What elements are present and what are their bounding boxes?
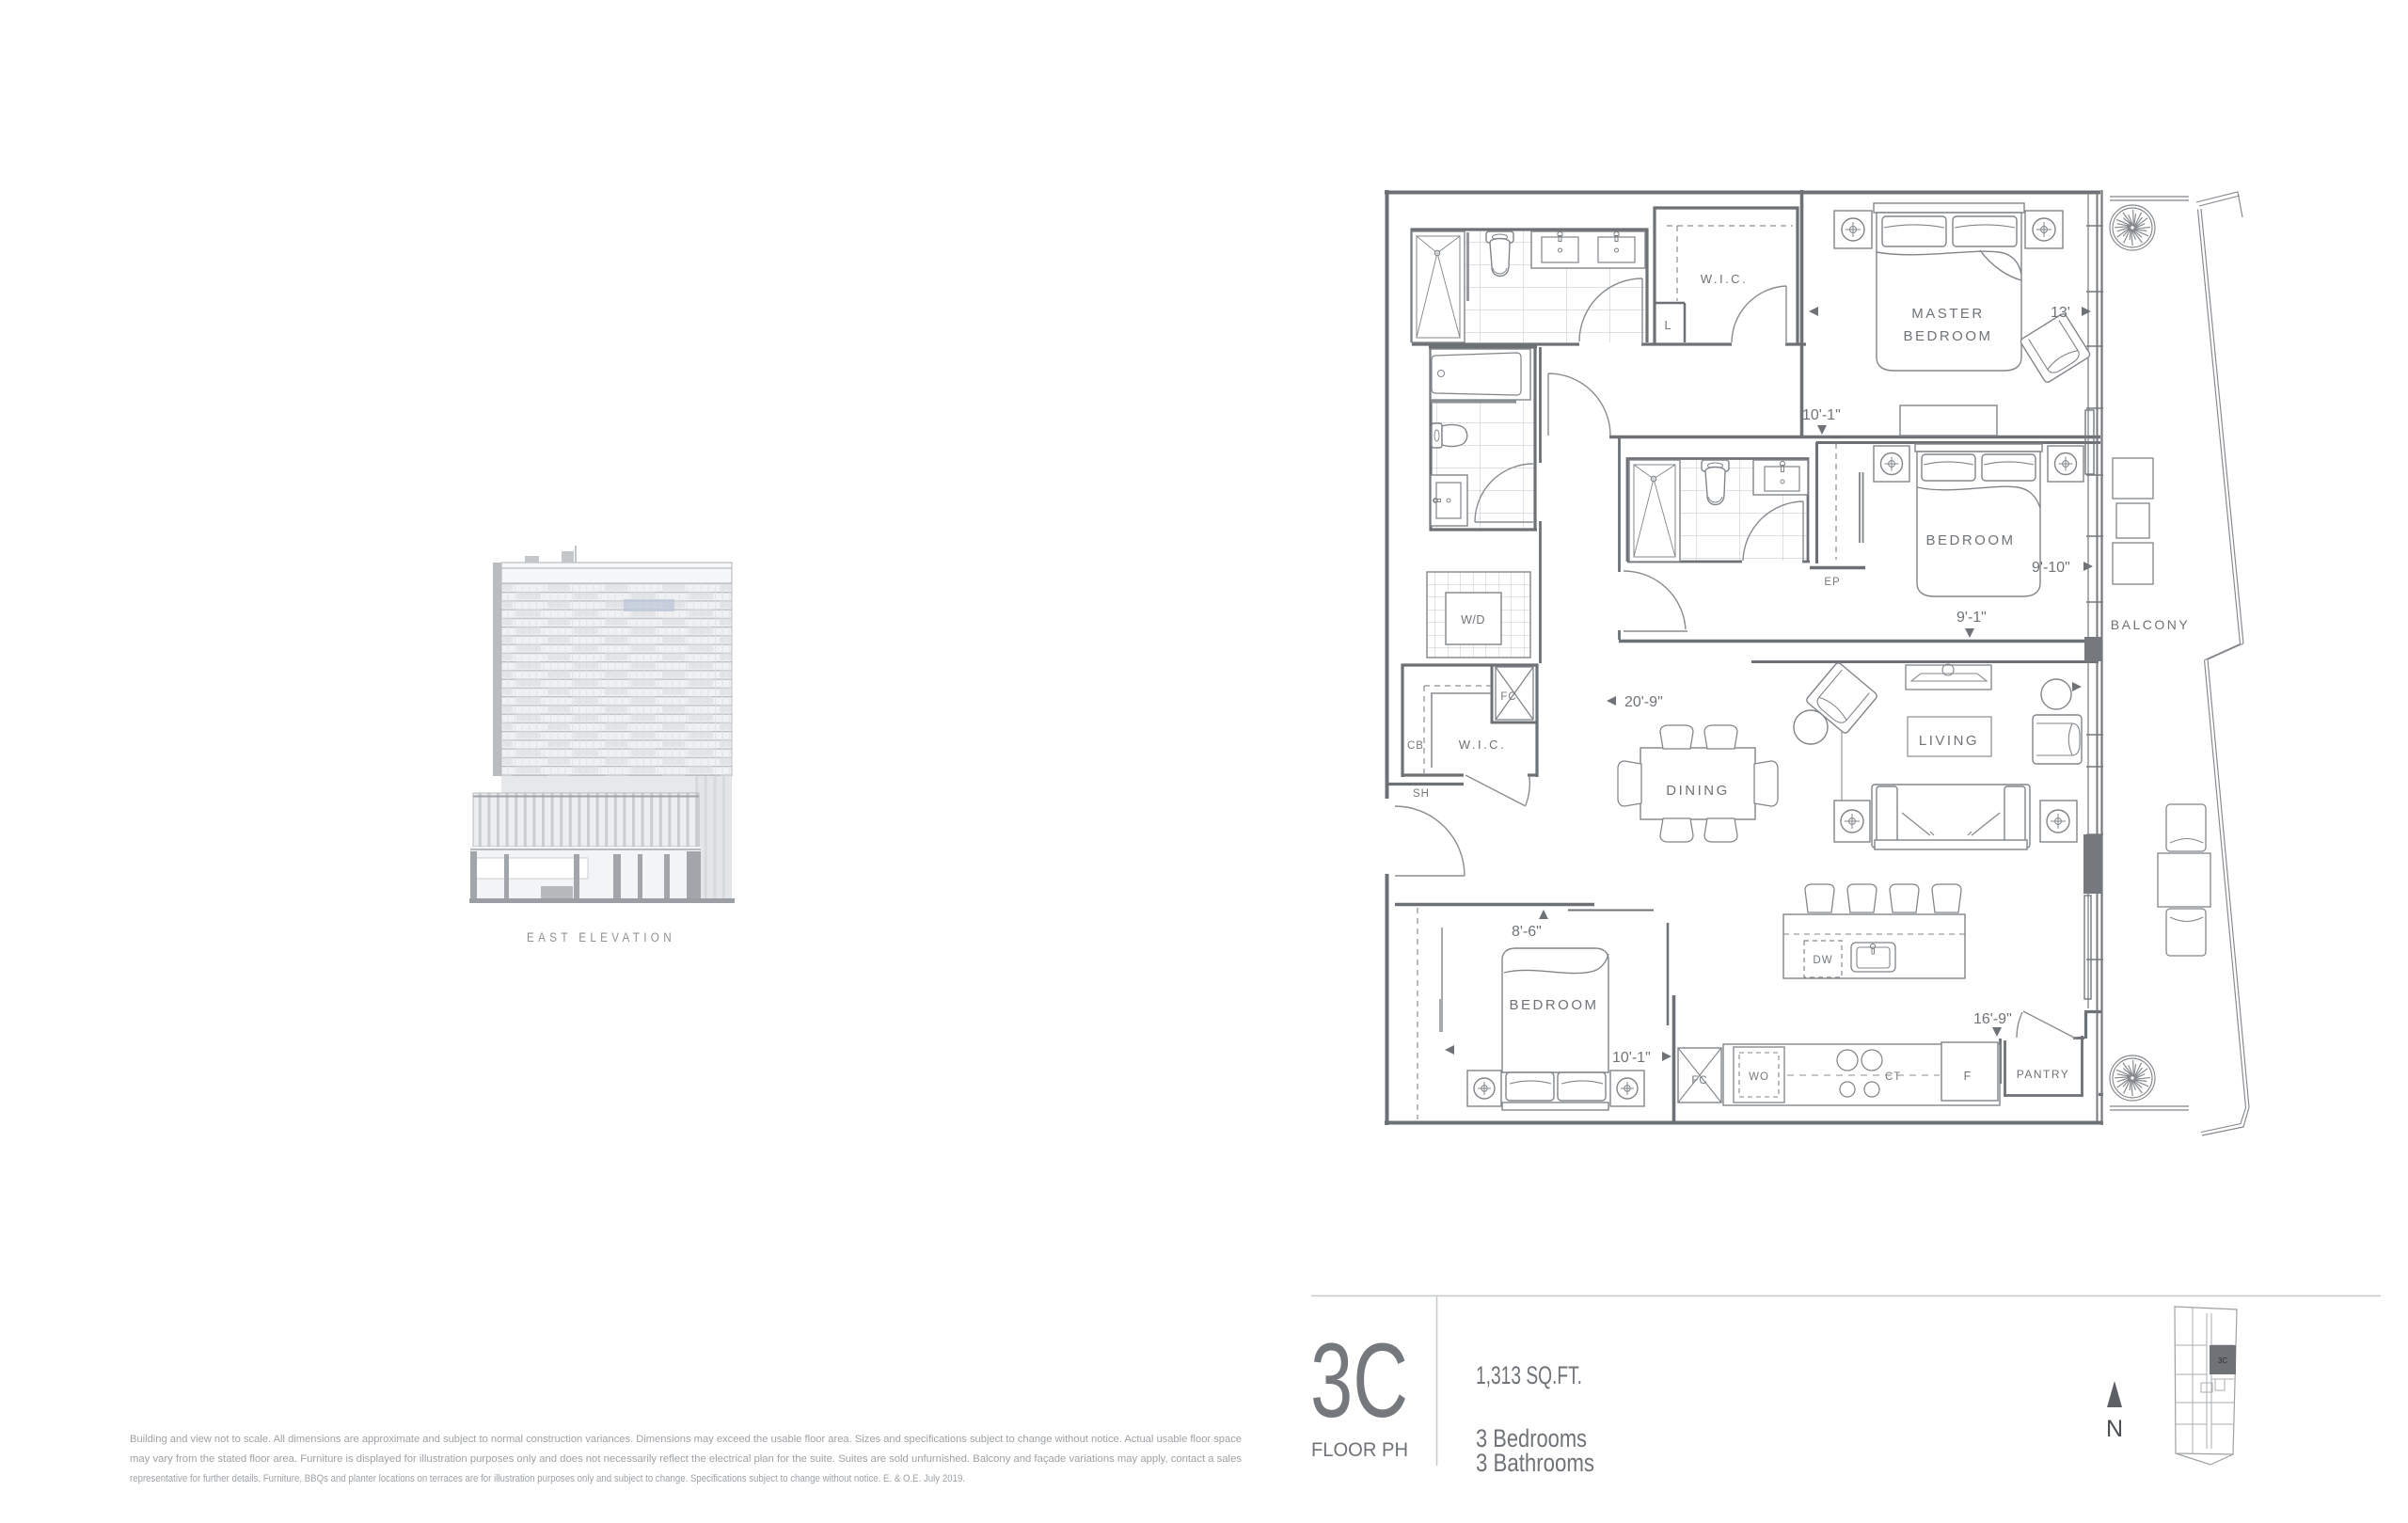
svg-text:BEDROOM: BEDROOM — [1509, 997, 1598, 1013]
svg-text:EP: EP — [1824, 577, 1840, 588]
svg-text:MASTER: MASTER — [1911, 306, 1985, 322]
svg-text:FC: FC — [1500, 691, 1516, 703]
svg-text:FLOOR PH: FLOOR PH — [1311, 1439, 1408, 1461]
svg-text:may vary from the stated floor: may vary from the stated floor area. Fur… — [130, 1453, 1242, 1465]
svg-text:L: L — [1665, 319, 1671, 332]
svg-text:representative for further det: representative for further details. Furn… — [130, 1473, 965, 1484]
svg-text:1,313 SQ.FT.: 1,313 SQ.FT. — [1476, 1361, 1582, 1389]
svg-text:BALCONY: BALCONY — [2111, 617, 2190, 632]
svg-text:SH: SH — [1413, 788, 1430, 800]
svg-text:9'-10": 9'-10" — [2032, 560, 2070, 576]
svg-text:BEDROOM: BEDROOM — [1925, 532, 2015, 548]
svg-text:20'-9": 20'-9" — [1624, 694, 1663, 710]
svg-text:CB: CB — [1407, 740, 1424, 752]
svg-text:LIVING: LIVING — [1919, 733, 1979, 749]
svg-text:W.I.C.: W.I.C. — [1701, 272, 1748, 286]
svg-text:10'-1": 10'-1" — [1612, 1050, 1651, 1066]
svg-text:BEDROOM: BEDROOM — [1903, 328, 1992, 344]
svg-text:W.I.C.: W.I.C. — [1459, 738, 1506, 752]
svg-text:10'-1": 10'-1" — [1802, 407, 1841, 423]
svg-text:16'-9": 16'-9" — [1973, 1011, 2012, 1027]
svg-text:8'-6": 8'-6" — [1512, 924, 1542, 940]
svg-text:PANTRY: PANTRY — [2017, 1068, 2070, 1081]
svg-text:DINING: DINING — [1666, 783, 1730, 799]
svg-text:F: F — [1964, 1070, 1972, 1083]
svg-text:FC: FC — [1691, 1075, 1707, 1087]
svg-text:9'-1": 9'-1" — [1956, 610, 1987, 626]
svg-text:3C: 3C — [2218, 1356, 2227, 1365]
svg-text:CT: CT — [1885, 1071, 1901, 1083]
svg-text:EAST ELEVATION: EAST ELEVATION — [527, 930, 675, 944]
svg-text:3C: 3C — [1310, 1322, 1408, 1439]
svg-text:N: N — [2106, 1416, 2123, 1442]
svg-text:Building and view not to scale: Building and view not to scale. All dime… — [130, 1434, 1242, 1445]
svg-text:W/D: W/D — [1461, 613, 1485, 627]
svg-text:DW: DW — [1813, 955, 1832, 966]
svg-text:WO: WO — [1749, 1071, 1769, 1083]
svg-text:3 Bathrooms: 3 Bathrooms — [1476, 1449, 1594, 1477]
svg-text:13': 13' — [2051, 305, 2070, 321]
